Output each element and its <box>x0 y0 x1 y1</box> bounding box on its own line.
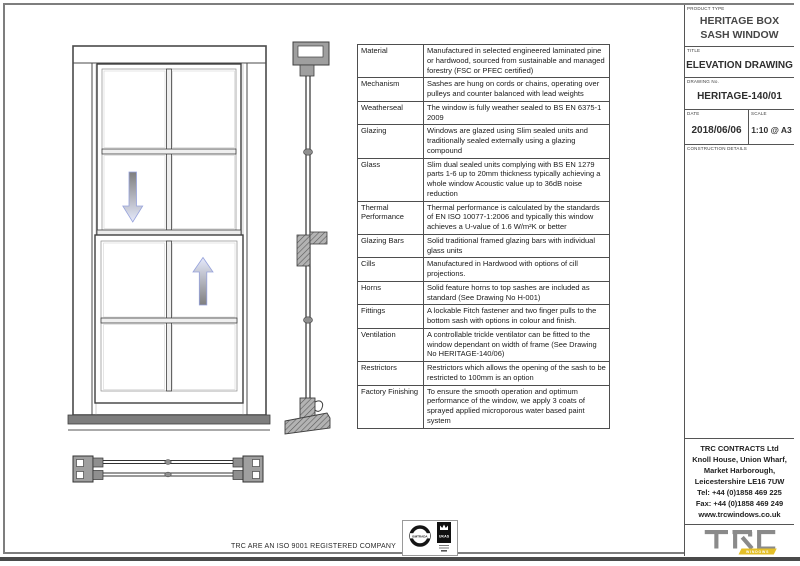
ukas-text: UKAS <box>438 535 449 539</box>
spec-text: Solid feature horns to top sashes are in… <box>424 281 610 305</box>
spec-text: Manufactured in Hardwood with options of… <box>424 258 610 282</box>
spec-label: Thermal Performance <box>358 201 424 234</box>
spec-row-restrictors: RestrictorsRestrictors which allows the … <box>358 362 610 386</box>
vertical-section-drawing <box>283 36 343 441</box>
top-sash <box>97 64 241 237</box>
spec-text: To ensure the smooth operation and optim… <box>424 385 610 428</box>
spec-row-thermal: Thermal PerformanceThermal performance i… <box>358 201 610 234</box>
trc-logo: WINDOWS <box>692 526 788 556</box>
spec-label: Material <box>358 45 424 78</box>
spec-row-glass: GlassSlim dual sealed units complying wi… <box>358 158 610 201</box>
drawing-no-value: HERITAGE-140/01 <box>685 84 794 109</box>
spec-row-horns: HornsSolid feature horns to top sashes a… <box>358 281 610 305</box>
spec-text: Thermal performance is calculated by the… <box>424 201 610 234</box>
spec-label: Fittings <box>358 305 424 329</box>
construction-details-label: CONSTRUCTION DETAILS <box>685 145 794 151</box>
spec-label: Ventilation <box>358 328 424 361</box>
spec-row-material: MaterialManufactured in selected enginee… <box>358 45 610 78</box>
iso-statement: TRC ARE AN ISO 9001 REGISTERED COMPANY <box>196 543 396 550</box>
address-line: Leicestershire LE16 7UW <box>685 476 794 487</box>
spec-row-mechanism: MechanismSashes are hung on cords or cha… <box>358 78 610 102</box>
windows-badge-text: WINDOWS <box>746 549 769 553</box>
spec-row-ventilation: VentilationA controllable trickle ventil… <box>358 328 610 361</box>
product-type-section: PRODUCT TYPE HERITAGE BOX SASH WINDOW <box>685 5 794 47</box>
ukas-cert-icon: UKAS <box>436 521 452 555</box>
scale-value: 1:10 @ A3 <box>749 116 794 144</box>
product-type-value: HERITAGE BOX SASH WINDOW <box>685 11 794 46</box>
spec-row-weatherseal: WeathersealThe window is fully weather s… <box>358 101 610 125</box>
spec-text: Solid traditional framed glazing bars wi… <box>424 234 610 258</box>
elevation-drawing <box>60 40 275 440</box>
phone-line: Tel: +44 (0)1858 469 225 <box>685 487 794 498</box>
address-line: Knoll House, Union Wharf, <box>685 454 794 465</box>
spec-label: Cills <box>358 258 424 282</box>
date-value: 2018/06/06 <box>685 116 748 144</box>
spec-row-glazing: GlazingWindows are glazed using Slim sea… <box>358 125 610 158</box>
address-line: Market Harborough, <box>685 465 794 476</box>
date-scale-section: DATE 2018/06/06 SCALE 1:10 @ A3 <box>685 110 794 145</box>
spec-text: A lockable Fitch fastener and two finger… <box>424 305 610 329</box>
spec-label: Mechanism <box>358 78 424 102</box>
spec-label: Glazing Bars <box>358 234 424 258</box>
sheet-title: ELEVATION DRAWING <box>685 53 794 77</box>
bmtrada-cert-icon: BMTRADA <box>409 522 431 554</box>
horizontal-section-drawing <box>58 446 278 496</box>
certification-logos: BMTRADA UKAS <box>402 520 458 556</box>
spec-label: Glass <box>358 158 424 201</box>
company-logo-section: WINDOWS <box>685 525 794 556</box>
spec-text: A controllable trickle ventilator can be… <box>424 328 610 361</box>
spec-label: Weatherseal <box>358 101 424 125</box>
spec-label: Restrictors <box>358 362 424 386</box>
bottom-sash <box>95 235 243 403</box>
spec-label: Factory Finishing <box>358 385 424 428</box>
construction-details-section: CONSTRUCTION DETAILS <box>685 145 794 439</box>
page-edge-line <box>0 557 800 561</box>
drawing-sheet: MaterialManufactured in selected enginee… <box>0 0 800 566</box>
spec-label: Horns <box>358 281 424 305</box>
title-block: PRODUCT TYPE HERITAGE BOX SASH WINDOW TI… <box>684 5 794 556</box>
title-section: TITLE ELEVATION DRAWING <box>685 47 794 78</box>
spec-text: Restrictors which allows the opening of … <box>424 362 610 386</box>
spec-text: Windows are glazed using Slim sealed uni… <box>424 125 610 158</box>
window-cill <box>68 415 270 424</box>
drawing-no-section: DRAWING No. HERITAGE-140/01 <box>685 78 794 110</box>
website-line: www.trcwindows.co.uk <box>685 509 794 520</box>
spec-row-factory-finishing: Factory FinishingTo ensure the smooth op… <box>358 385 610 428</box>
spec-label: Glazing <box>358 125 424 158</box>
spec-row-cills: CillsManufactured in Hardwood with optio… <box>358 258 610 282</box>
company-address-block: TRC CONTRACTS Ltd Knoll House, Union Wha… <box>685 439 794 525</box>
company-name: TRC CONTRACTS Ltd <box>685 443 794 454</box>
spec-text: The window is fully weather sealed to BS… <box>424 101 610 125</box>
spec-text: Slim dual sealed units complying with BS… <box>424 158 610 201</box>
spec-text: Manufactured in selected engineered lami… <box>424 45 610 78</box>
spec-row-glazing-bars: Glazing BarsSolid traditional framed gla… <box>358 234 610 258</box>
bmtrada-text: BMTRADA <box>412 534 428 538</box>
spec-text: Sashes are hung on cords or chains, oper… <box>424 78 610 102</box>
spec-table: MaterialManufactured in selected enginee… <box>357 44 610 429</box>
spec-row-fittings: FittingsA lockable Fitch fastener and tw… <box>358 305 610 329</box>
meeting-rail-profile <box>297 235 310 266</box>
fax-line: Fax: +44 (0)1858 469 249 <box>685 498 794 509</box>
